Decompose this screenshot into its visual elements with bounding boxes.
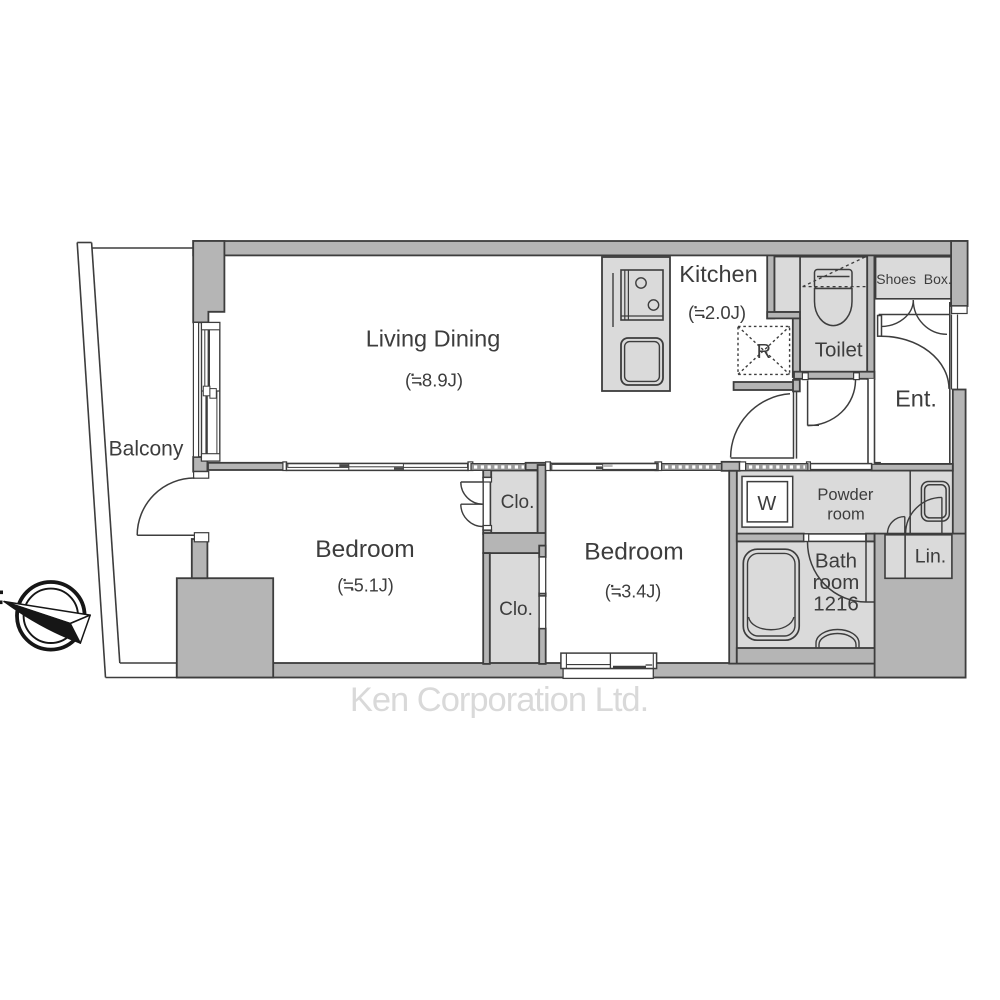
svg-text:Toilet: Toilet	[815, 339, 863, 362]
svg-text:(=3.4J): (=3.4J)	[605, 582, 662, 602]
svg-text:Shoes Box.: Shoes Box.	[876, 271, 952, 287]
svg-text:Living Dining: Living Dining	[366, 326, 501, 352]
svg-text:room: room	[813, 571, 860, 594]
svg-text:Clo.: Clo.	[499, 599, 533, 620]
svg-text:(=8.9J): (=8.9J)	[405, 370, 463, 391]
svg-text:Balcony: Balcony	[109, 438, 184, 461]
svg-text:Powder: Powder	[817, 486, 873, 504]
svg-text:Ken Corporation Ltd.: Ken Corporation Ltd.	[350, 681, 648, 719]
svg-text:Clo.: Clo.	[501, 492, 535, 513]
svg-text:(=2.0J): (=2.0J)	[688, 302, 746, 323]
svg-text:Ent.: Ent.	[895, 385, 937, 411]
svg-text:R: R	[757, 341, 771, 363]
svg-text:Bedroom: Bedroom	[584, 539, 683, 566]
svg-text:(=5.1J): (=5.1J)	[337, 576, 394, 596]
svg-text:Bath: Bath	[815, 550, 857, 573]
svg-text:Lin.: Lin.	[915, 546, 946, 568]
svg-text:Bedroom: Bedroom	[315, 536, 414, 563]
svg-text:room: room	[827, 506, 865, 524]
svg-text:W: W	[757, 493, 776, 515]
svg-text:1216: 1216	[813, 593, 859, 616]
svg-text:Kitchen: Kitchen	[679, 261, 757, 287]
